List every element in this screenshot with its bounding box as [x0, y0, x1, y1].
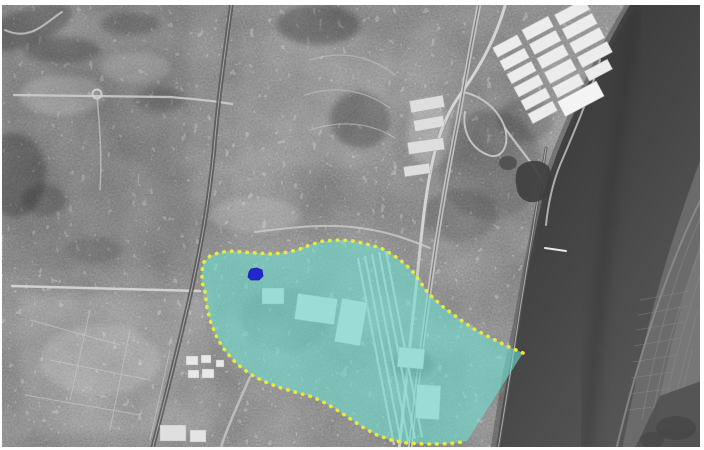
aerial-map[interactable]	[0, 0, 704, 450]
pond-small	[499, 156, 517, 170]
screenshot-page	[0, 0, 704, 450]
site-marker[interactable]	[248, 268, 263, 280]
